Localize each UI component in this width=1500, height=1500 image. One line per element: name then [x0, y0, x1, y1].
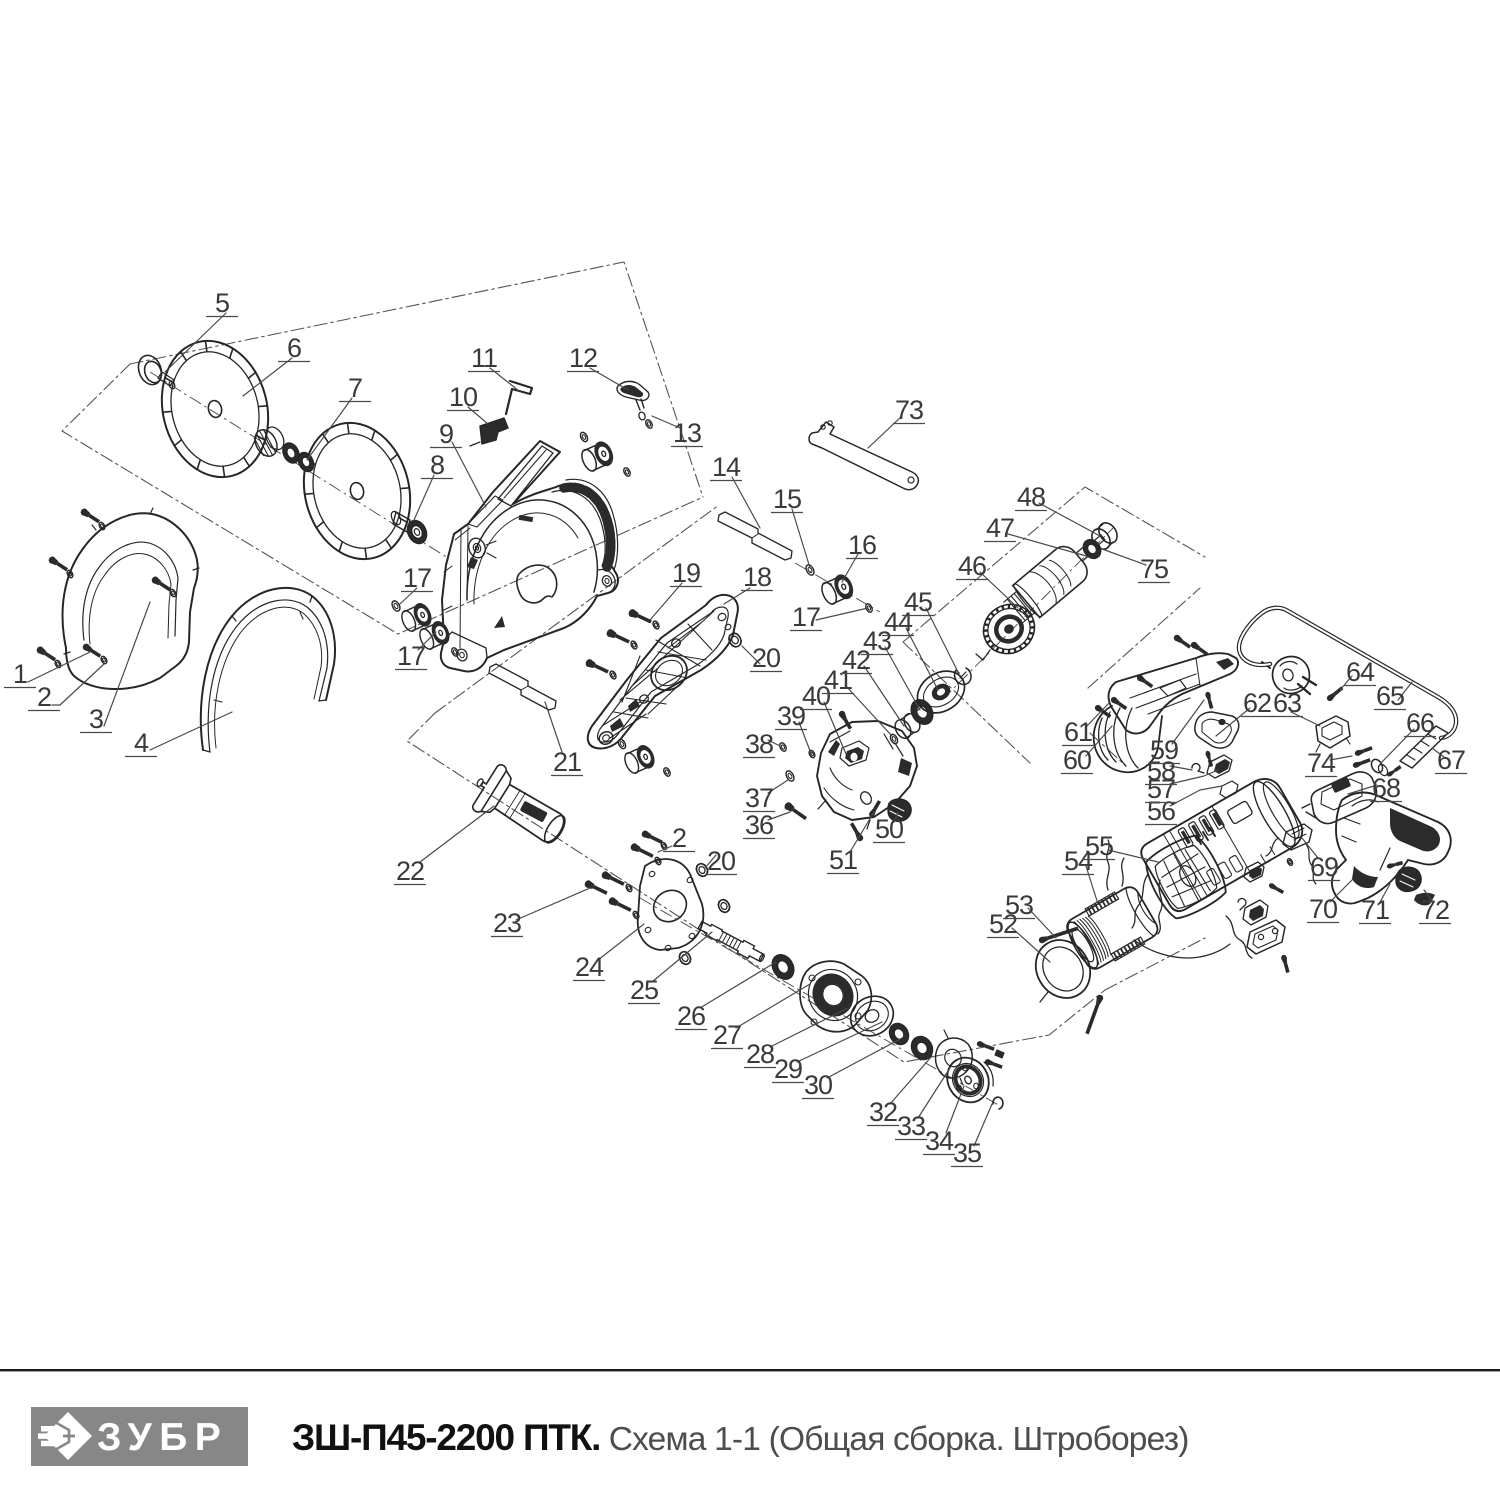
svg-text:3: 3 — [89, 704, 103, 734]
svg-text:6: 6 — [287, 333, 301, 363]
svg-text:61: 61 — [1064, 717, 1092, 747]
svg-text:65: 65 — [1376, 681, 1404, 711]
svg-text:16: 16 — [848, 530, 876, 560]
svg-text:70: 70 — [1309, 894, 1337, 924]
svg-text:35: 35 — [953, 1138, 981, 1168]
svg-text:ЗУБР: ЗУБР — [97, 1416, 228, 1459]
svg-text:11: 11 — [471, 343, 497, 373]
svg-text:71: 71 — [1361, 895, 1389, 925]
svg-text:72: 72 — [1421, 895, 1449, 925]
svg-text:63: 63 — [1273, 688, 1301, 718]
svg-text:17: 17 — [403, 563, 431, 593]
svg-text:68: 68 — [1372, 773, 1400, 803]
svg-text:33: 33 — [897, 1111, 925, 1141]
svg-text:32: 32 — [869, 1097, 897, 1127]
svg-text:22: 22 — [396, 856, 424, 886]
svg-text:20: 20 — [752, 643, 780, 673]
svg-text:4: 4 — [134, 728, 149, 758]
svg-text:23: 23 — [493, 908, 521, 938]
svg-text:37: 37 — [745, 783, 773, 813]
svg-text:75: 75 — [1140, 554, 1168, 584]
svg-text:30: 30 — [804, 1070, 832, 1100]
svg-text:18: 18 — [743, 562, 771, 592]
svg-text:67: 67 — [1437, 745, 1465, 775]
svg-text:17: 17 — [792, 602, 820, 632]
svg-text:45: 45 — [904, 587, 932, 617]
svg-text:53: 53 — [1005, 890, 1033, 920]
svg-text:17: 17 — [397, 641, 425, 671]
svg-text:25: 25 — [630, 975, 658, 1005]
svg-text:7: 7 — [348, 373, 362, 403]
svg-text:1: 1 — [13, 659, 27, 689]
svg-text:2: 2 — [37, 682, 51, 712]
svg-text:12: 12 — [569, 343, 597, 373]
svg-text:39: 39 — [777, 701, 805, 731]
svg-text:34: 34 — [925, 1126, 954, 1156]
svg-text:14: 14 — [712, 452, 741, 482]
svg-text:21: 21 — [553, 747, 581, 777]
svg-text:5: 5 — [215, 288, 229, 318]
svg-text:64: 64 — [1346, 657, 1375, 687]
svg-text:2: 2 — [672, 823, 686, 853]
svg-text:26: 26 — [677, 1001, 705, 1031]
svg-text:27: 27 — [713, 1020, 741, 1050]
svg-text:24: 24 — [575, 952, 604, 982]
svg-text:59: 59 — [1150, 735, 1178, 765]
svg-text:36: 36 — [745, 810, 773, 840]
svg-text:9: 9 — [439, 419, 453, 449]
svg-text:50: 50 — [875, 814, 903, 844]
svg-text:19: 19 — [672, 558, 700, 588]
svg-text:66: 66 — [1406, 708, 1434, 738]
svg-text:28: 28 — [746, 1039, 774, 1069]
svg-text:47: 47 — [986, 513, 1014, 543]
svg-text:55: 55 — [1085, 831, 1113, 861]
svg-text:51: 51 — [829, 845, 857, 875]
svg-text:48: 48 — [1017, 482, 1045, 512]
svg-text:46: 46 — [958, 551, 986, 581]
svg-text:62: 62 — [1243, 688, 1271, 718]
svg-text:ЗШ-П45-2200 ПТК. Схема 1-1 (Об: ЗШ-П45-2200 ПТК. Схема 1-1 (Общая сборка… — [292, 1417, 1189, 1458]
svg-text:60: 60 — [1063, 745, 1091, 775]
svg-text:20: 20 — [707, 846, 735, 876]
svg-text:15: 15 — [773, 484, 801, 514]
svg-text:29: 29 — [774, 1054, 802, 1084]
svg-text:8: 8 — [430, 450, 444, 480]
svg-text:13: 13 — [673, 418, 701, 448]
svg-text:69: 69 — [1310, 852, 1338, 882]
svg-text:73: 73 — [895, 395, 923, 425]
svg-text:74: 74 — [1307, 748, 1336, 778]
svg-text:10: 10 — [449, 382, 477, 412]
svg-text:38: 38 — [745, 729, 773, 759]
